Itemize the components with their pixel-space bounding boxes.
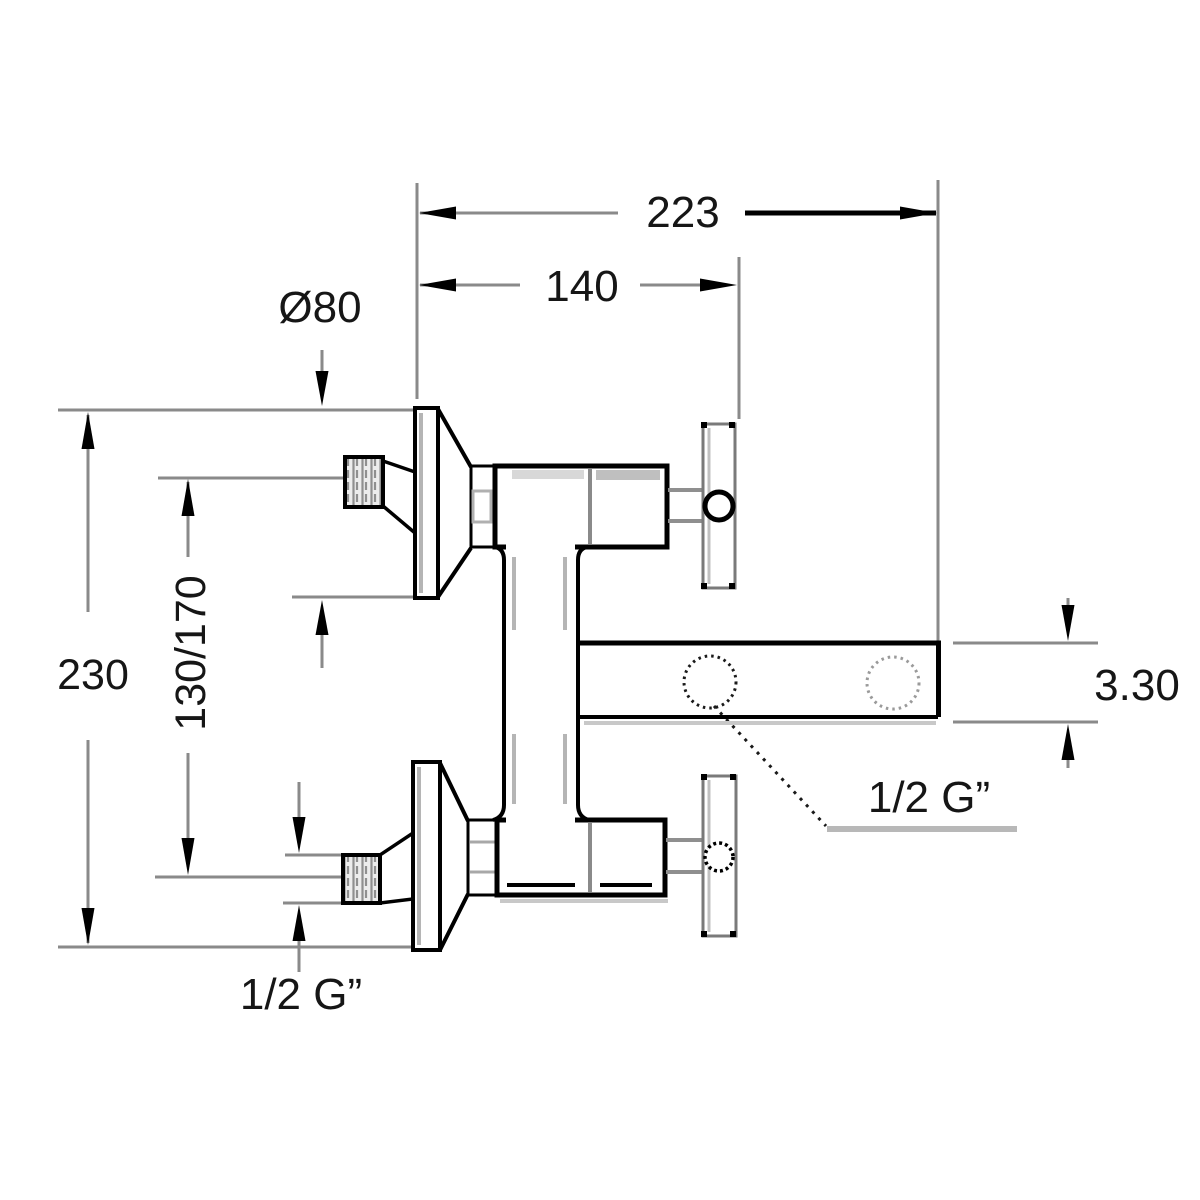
dim-label-spout-section: 3.30: [1094, 661, 1180, 710]
pipe-opening-bottom: [506, 814, 575, 825]
bottom-inlet-threaded-nipple: [343, 855, 380, 903]
arrow-223-left: [419, 207, 456, 220]
connecting-pipe: [493, 541, 589, 825]
pipe-inner-shading: [514, 557, 565, 804]
top-inlet-horn: [383, 461, 415, 533]
arrow-130-170-down: [182, 838, 195, 875]
top-handle: [668, 422, 735, 589]
arrow-d80-up: [316, 600, 329, 635]
arrow-330-up: [1062, 724, 1075, 760]
top-handle-hub-circle: [705, 492, 733, 520]
dim-label-total-width: 223: [646, 188, 719, 237]
bottom-escutcheon-cone: [440, 763, 468, 950]
arrow-inlet-thread-up: [293, 905, 306, 941]
arrow-d80-down: [316, 371, 329, 406]
dim-label-inlet-spacing: 130/170: [167, 575, 215, 730]
arrow-140-right: [700, 279, 737, 292]
bottom-handle-hub-circle: [705, 843, 733, 871]
bottom-handle: [666, 774, 736, 937]
arrow-140-left: [419, 279, 456, 292]
dim-label-wall-to-handle: 140: [545, 262, 618, 311]
arrow-130-170-up: [182, 479, 195, 516]
pipe-left-wall: [493, 547, 504, 820]
dim-label-total-height: 230: [57, 651, 129, 699]
dim-label-inlet-thread: 1/2 G”: [240, 970, 362, 1019]
faucet-drawing: [343, 408, 939, 950]
arrow-223-right: [900, 207, 937, 220]
pipe-opening-top: [506, 541, 575, 552]
bottom-inlet-horn: [380, 833, 413, 903]
arrow-230-up: [82, 412, 95, 449]
top-escutcheon-cone: [438, 409, 471, 597]
top-body-shading-left: [512, 470, 584, 479]
technical-drawing-canvas: 223 140 Ø80 230 130/170 3.30 1/2 G” 1/2 …: [0, 0, 1200, 1200]
top-inlet-threaded-nipple: [345, 457, 383, 507]
spout-outline-top-right: [577, 643, 939, 717]
arrow-inlet-thread-down: [293, 817, 306, 853]
arrow-330-down: [1062, 605, 1075, 641]
dim-label-flange-diameter: Ø80: [278, 283, 361, 332]
top-body-shading-right: [596, 470, 660, 480]
pipe-right-wall: [578, 547, 589, 820]
arrow-230-down: [82, 908, 95, 945]
dim-label-spout-thread: 1/2 G”: [868, 773, 990, 822]
bottom-valve-neck: [468, 820, 497, 895]
top-wall-flange: [415, 408, 438, 598]
spout: [577, 643, 939, 723]
